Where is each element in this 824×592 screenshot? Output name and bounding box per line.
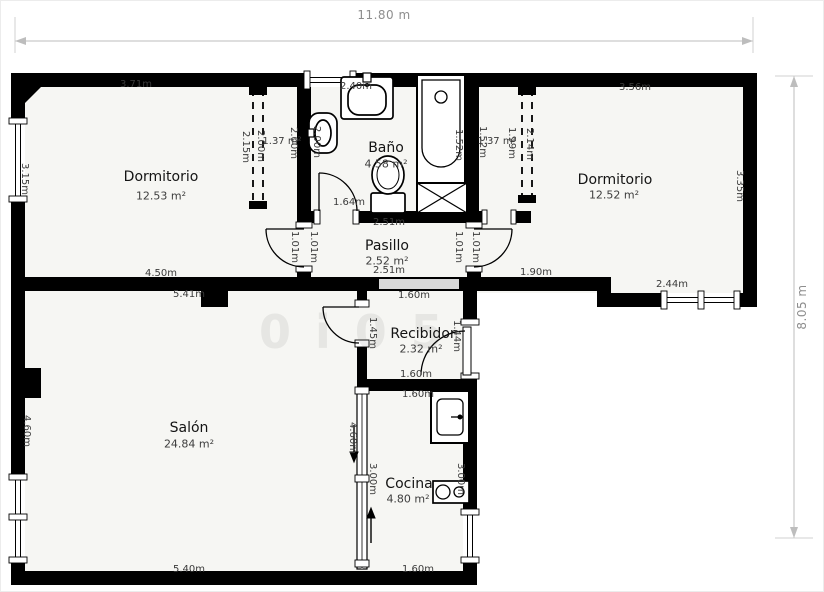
dimension-line-right bbox=[775, 76, 813, 538]
window-bedroom-right-bottom bbox=[661, 291, 740, 309]
glazed-partition bbox=[355, 387, 369, 569]
window-salon-left bbox=[9, 474, 27, 563]
window-cocina-right bbox=[461, 509, 479, 563]
stove-icon bbox=[433, 481, 469, 503]
toilet-icon bbox=[371, 156, 405, 213]
floor-plan-drawing bbox=[1, 1, 824, 592]
shaft-icon bbox=[417, 183, 467, 213]
floor-plan-page: 0i05 11.80 m8.05 m3.71m2.40m3.56m1.37 m²… bbox=[0, 0, 824, 592]
bathtub-icon bbox=[417, 75, 465, 185]
glazed-transom-panel bbox=[379, 279, 459, 289]
dimension-line-top bbox=[15, 17, 753, 53]
bidet-icon bbox=[308, 113, 337, 153]
window-bedroom-left bbox=[9, 118, 27, 202]
washbasin-icon bbox=[341, 73, 393, 119]
kitchen-sink-icon bbox=[431, 391, 469, 443]
